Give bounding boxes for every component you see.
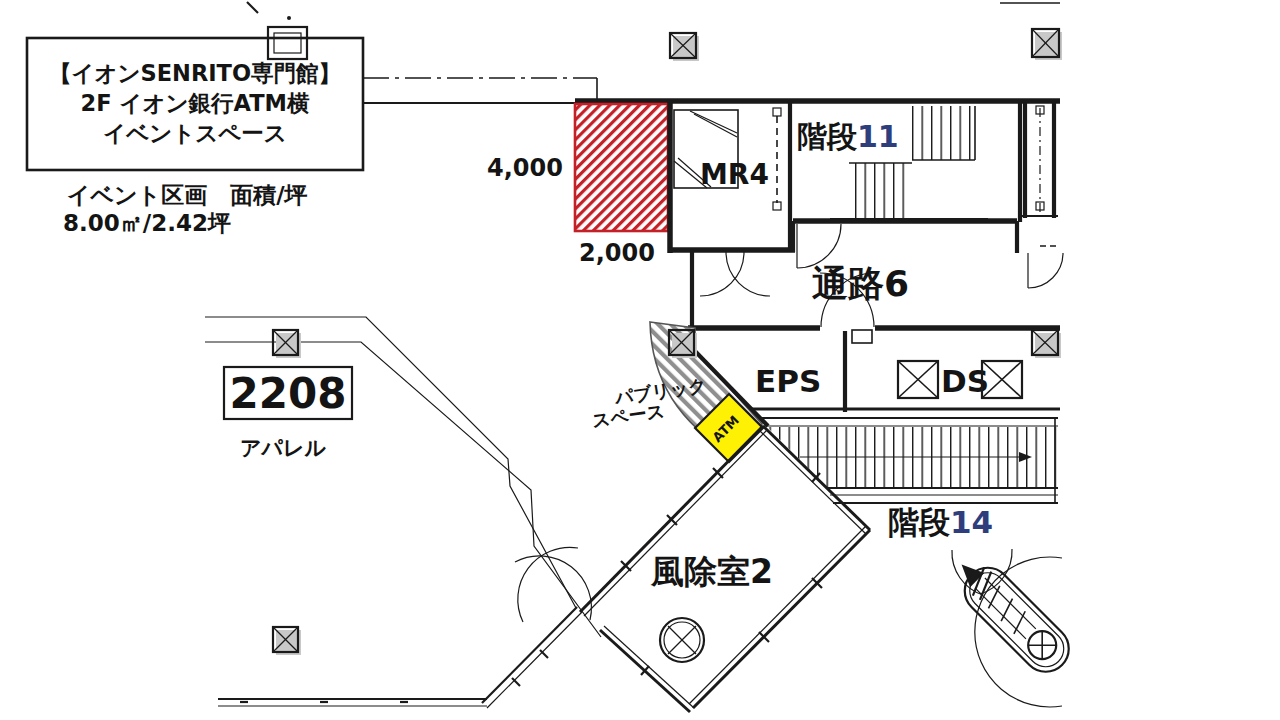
right-shaft [1017, 101, 1063, 288]
top-edge-marks [247, 2, 1060, 20]
escalator [945, 548, 1078, 707]
label-mr4: MR4 [700, 158, 769, 191]
label-unit-type: アパレル [240, 436, 326, 460]
label-windbreak2: 風除室2 [650, 552, 773, 591]
windbreak-column-symbol [660, 618, 704, 662]
label-public-2: スペース [591, 400, 666, 431]
tenant-2208: 2208 アパレル [224, 367, 352, 460]
floorplan-page: 4,000 2,000 MR4 階段11 [0, 0, 1280, 720]
event-space-area: 4,000 2,000 [487, 104, 668, 267]
legend-title-line1: 【イオンSENRITO専門館】 [49, 60, 341, 86]
dim-2000: 2,000 [579, 239, 655, 267]
legend-area-value: 8.00㎡/2.42坪 [63, 210, 231, 236]
column-top-right [1032, 29, 1062, 60]
floorplan-drawing: 4,000 2,000 MR4 階段11 [0, 0, 1280, 720]
stairs14: 階段14 [760, 418, 1058, 540]
legend-title-line3: イベントスペース [103, 120, 287, 146]
dim-4000: 4,000 [487, 154, 563, 182]
column-2208 [273, 330, 301, 358]
column-public [669, 330, 697, 358]
label-unit-no: 2208 [230, 369, 347, 418]
event-space-hatch [575, 104, 668, 231]
label-eps: EPS [755, 363, 821, 399]
lease-lines [363, 78, 597, 103]
column-right-mid [1032, 330, 1061, 358]
rooms-eps-ds: EPS DS [752, 331, 1060, 412]
legend-area-caption: イベント区画 面積/坪 [67, 182, 308, 208]
mall-corridor-lines [205, 317, 601, 637]
ds-duct-left [898, 361, 938, 398]
label-stairs11: 階段11 [797, 119, 899, 154]
legend-title-line2: 2F イオン銀行ATM横 [81, 90, 310, 116]
column-bottom-left [273, 627, 301, 655]
room-stairs11: 階段11 [793, 101, 1020, 268]
legend: 【イオンSENRITO専門館】 2F イオン銀行ATM横 イベントスペース イベ… [27, 38, 363, 236]
corridor6: 通路6 [688, 250, 1060, 356]
bottom-walls [218, 607, 582, 708]
label-stairs14: 階段14 [888, 504, 993, 540]
column-topleft [268, 27, 307, 59]
column-top-middle [670, 33, 699, 61]
label-corridor6: 通路6 [812, 263, 909, 304]
room-mr4: MR4 [668, 101, 795, 253]
